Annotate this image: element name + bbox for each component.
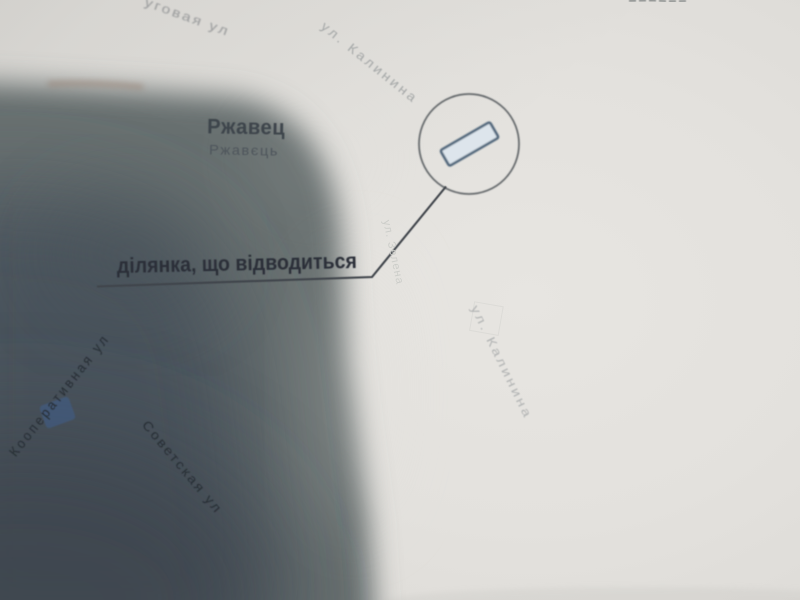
svg-text:Ржавец: Ржавец bbox=[207, 115, 285, 139]
svg-text:Ржавєць: Ржавєць bbox=[209, 141, 279, 158]
